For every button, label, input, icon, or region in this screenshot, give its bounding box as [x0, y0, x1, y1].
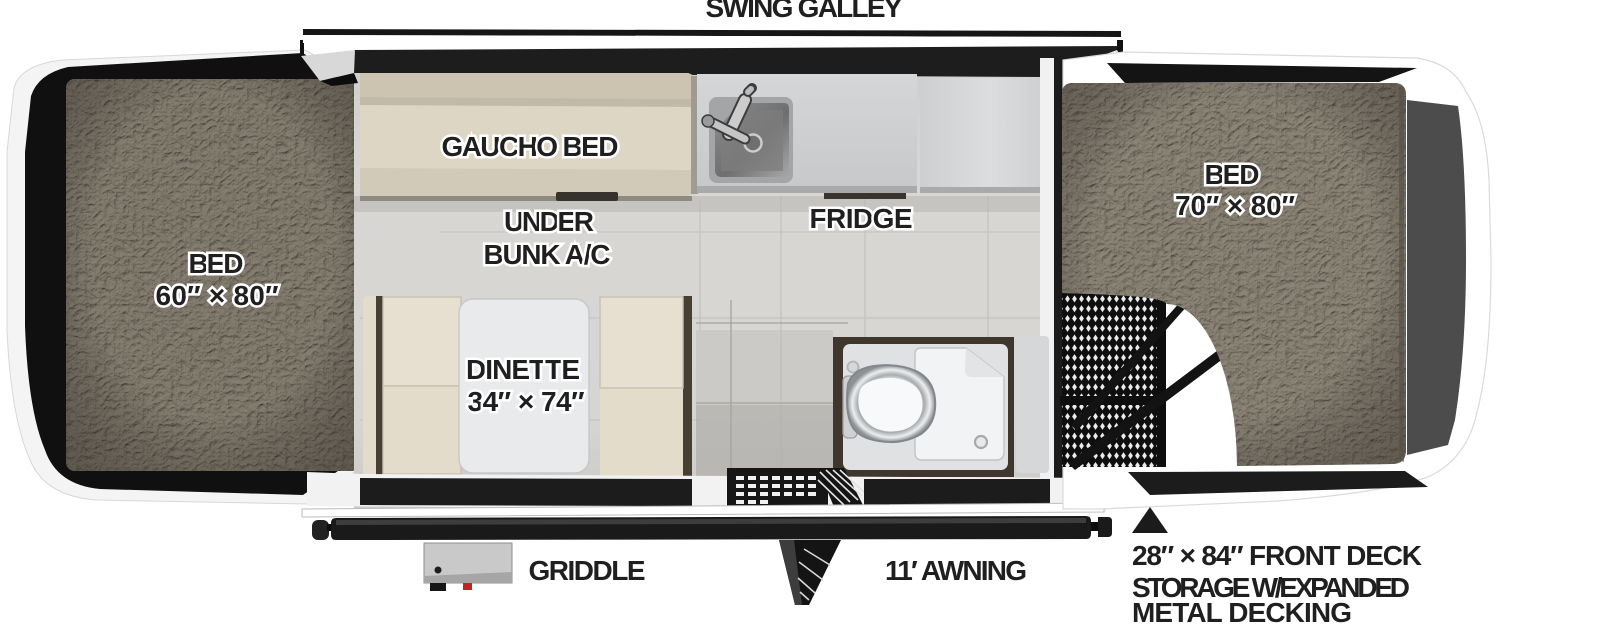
svg-text:11′ AWNING: 11′ AWNING	[885, 555, 1027, 586]
svg-text:SWING GALLEY: SWING GALLEY	[706, 0, 903, 23]
svg-text:28″ × 84″ FRONT DECK: 28″ × 84″ FRONT DECK	[1132, 540, 1422, 571]
svg-text:FRIDGE: FRIDGE	[810, 203, 913, 234]
svg-text:34″ × 74″: 34″ × 74″	[468, 386, 585, 417]
svg-text:BUNK A/C: BUNK A/C	[484, 239, 611, 270]
svg-text:BED: BED	[189, 248, 244, 279]
svg-text:METAL DECKING: METAL DECKING	[1132, 597, 1352, 624]
svg-text:UNDER: UNDER	[504, 206, 594, 237]
svg-text:BED: BED	[1205, 159, 1260, 190]
svg-text:GAUCHO BED: GAUCHO BED	[442, 131, 619, 162]
svg-text:70″ × 80″: 70″ × 80″	[1175, 190, 1295, 221]
svg-text:60″ × 80″: 60″ × 80″	[156, 280, 279, 311]
svg-text:DINETTE: DINETTE	[466, 354, 580, 385]
svg-text:GRIDDLE: GRIDDLE	[529, 555, 646, 586]
